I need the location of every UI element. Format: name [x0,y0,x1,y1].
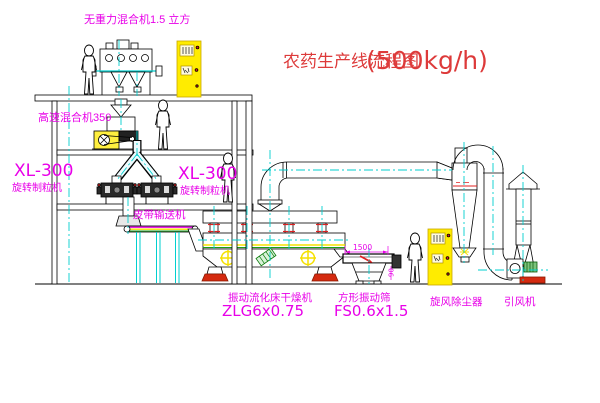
label-granulator-mid-model: XL-300 [178,164,237,184]
label-belt-conveyor: 皮带输送机 [133,208,186,221]
gravity-free-mixer [90,40,162,95]
label-granulator-mid-name: 旋转制粒机 [180,184,230,197]
dryer-ports [208,223,328,233]
rotary-granulator-right [137,176,177,204]
label-granulator-left-model: XL-300 [14,161,73,181]
dim-screen-length: 1500 [353,243,372,252]
label-screen-model: FS0.6x1.5 [334,302,408,320]
cad-flow-diagram: 无重力混合机1.5 立方 高速混合机350 XL-300 旋转制粒机 XL-30… [0,0,600,403]
worker-ground [408,233,423,282]
control-cabinet-upper [177,41,201,97]
exhaust-duct [258,162,452,211]
fluid-bed-dryer [202,211,351,281]
label-high-speed-mixer: 高速混合机350 [38,110,111,124]
label-gravity-mixer: 无重力混合机1.5 立方 [84,12,190,26]
control-cabinet-lower [428,229,452,285]
belt-conveyor [124,226,207,283]
granulator-feed-pipe [118,140,156,178]
diagram-canvas: 无重力混合机1.5 立方 高速混合机350 XL-300 旋转制粒机 XL-30… [0,0,600,403]
label-cyclone: 旋风除尘器 [430,295,483,308]
label-granulator-left-name: 旋转制粒机 [12,181,62,194]
induced-draft-fan [507,259,545,283]
worker-level-2 [156,100,171,149]
label-fan: 引风机 [504,295,536,308]
dim-screen-height: 90 [388,268,396,277]
worker-top-platform [82,45,97,94]
diagram-title-capacity: (500kg/h) [366,46,488,75]
label-dryer-model: ZLG6x0.75 [222,302,304,320]
